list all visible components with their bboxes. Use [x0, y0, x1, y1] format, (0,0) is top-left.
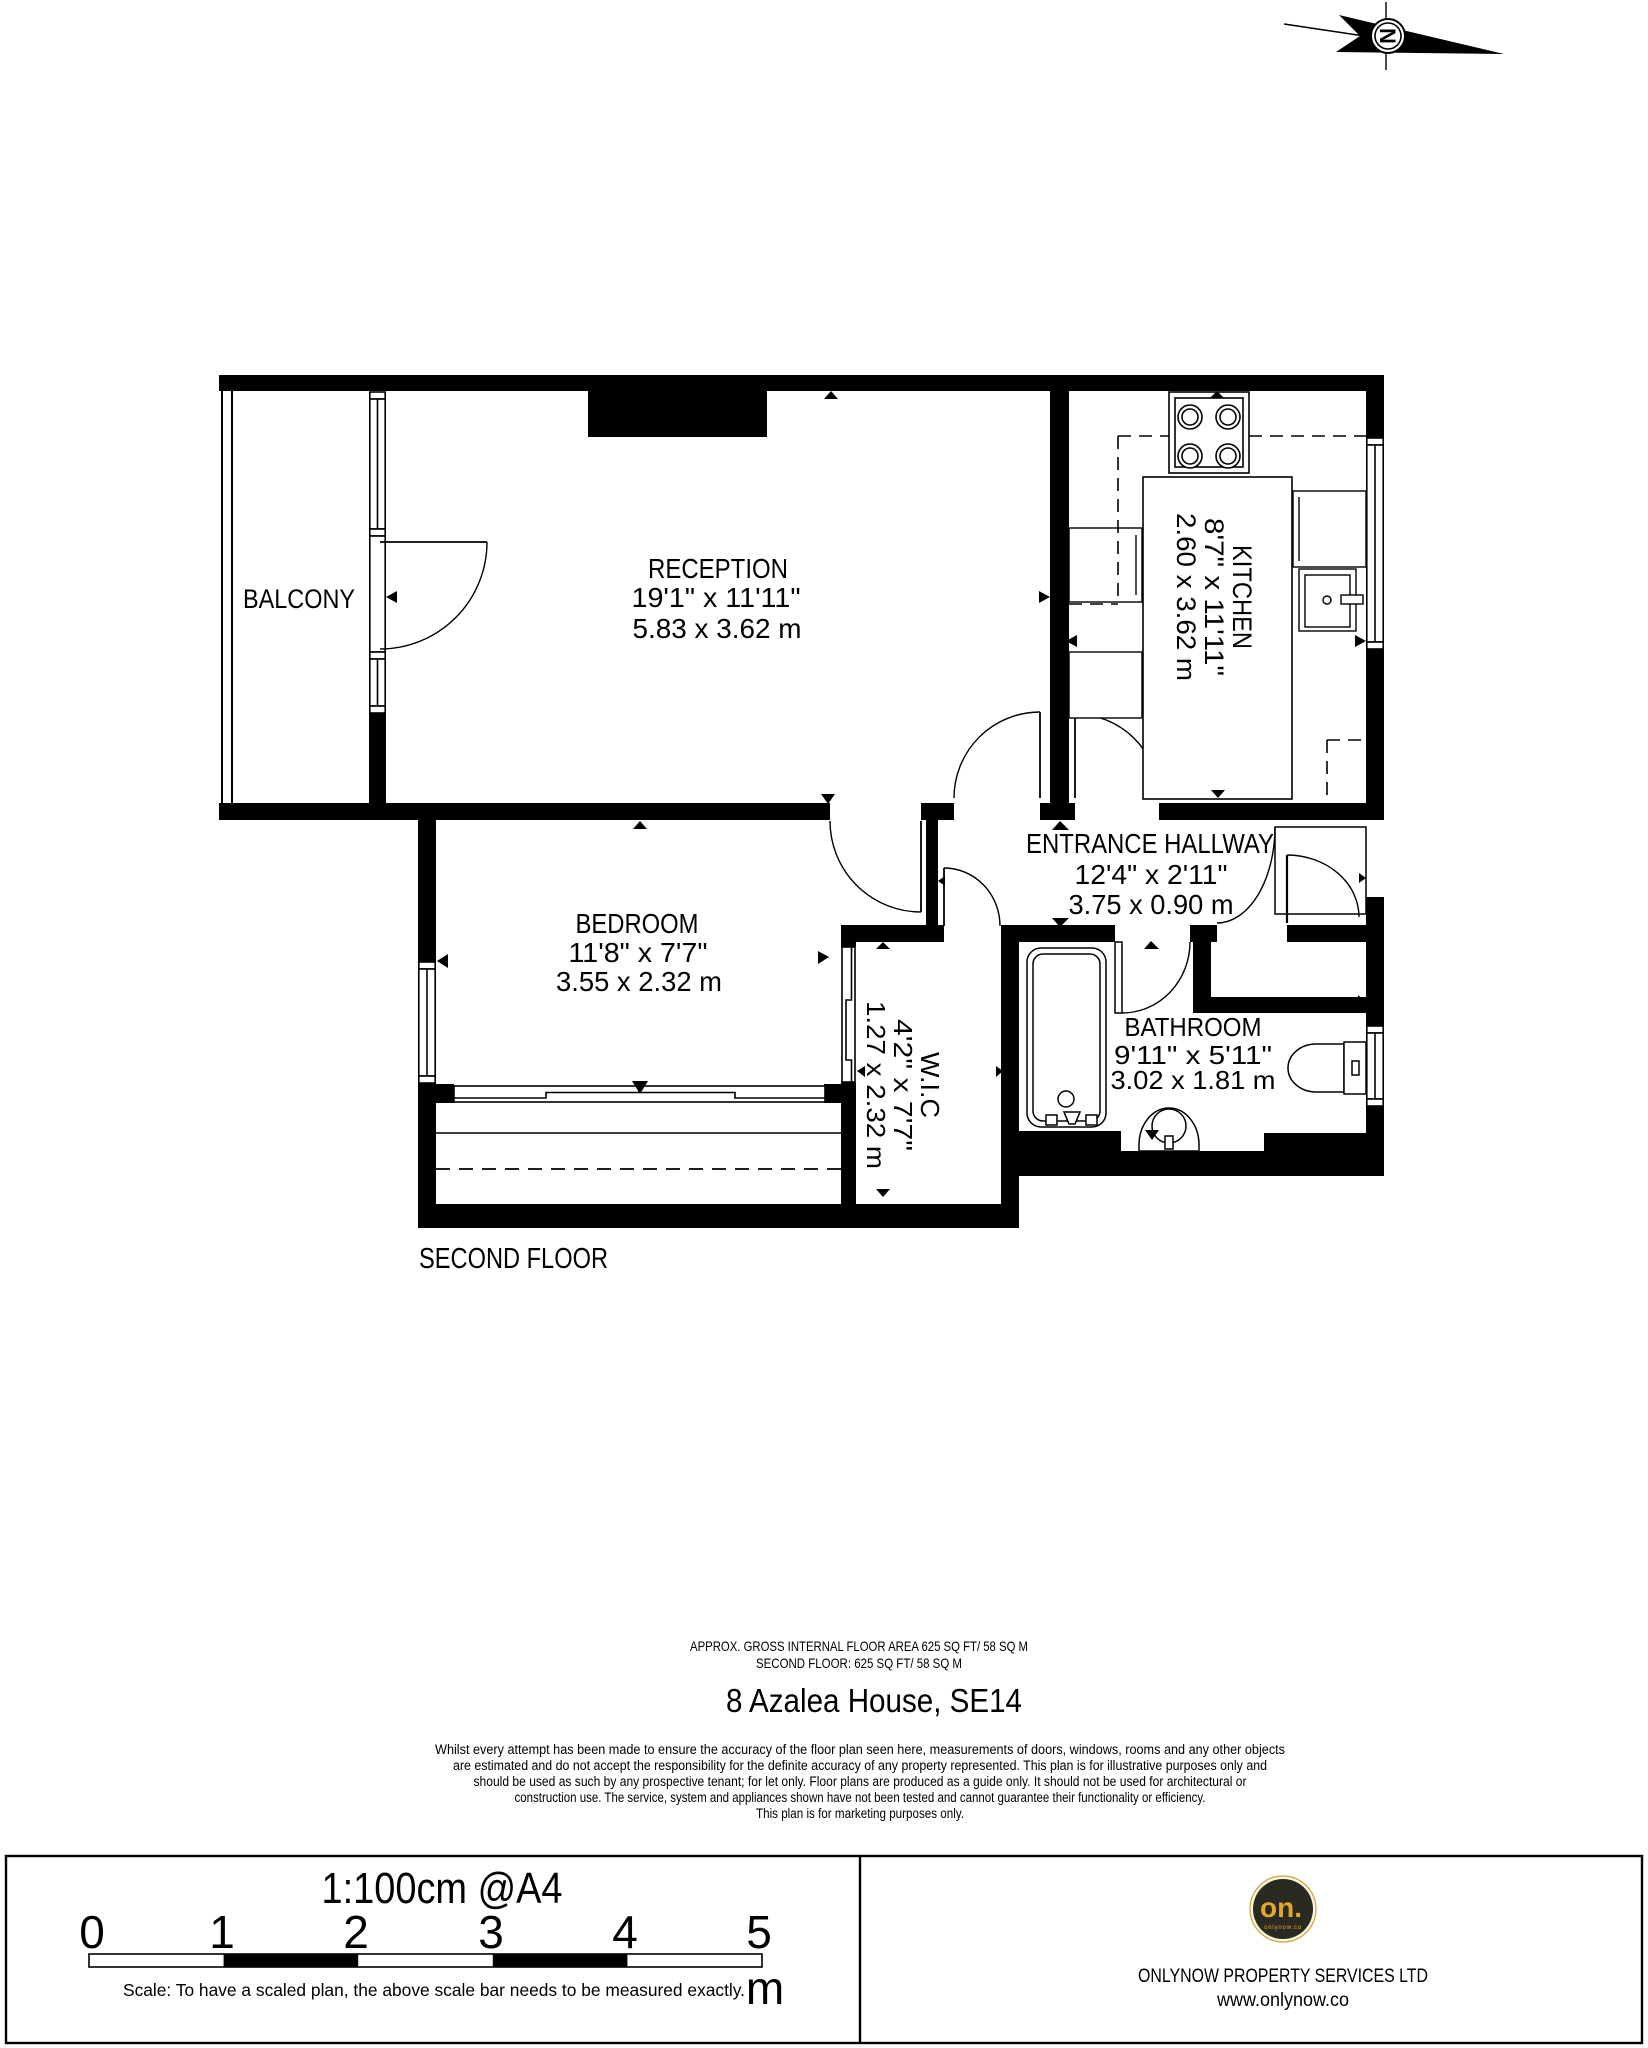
svg-text:are estimated and do not accep: are estimated and do not accept the resp… [453, 1758, 1267, 1773]
svg-text:BATHROOM: BATHROOM [1125, 1012, 1262, 1042]
svg-text:8'7" x 11'11": 8'7" x 11'11" [1199, 518, 1229, 676]
svg-text:www.onlynow.co: www.onlynow.co [1216, 1990, 1349, 2011]
svg-text:W.I.C: W.I.C [915, 1052, 945, 1118]
svg-text:BALCONY: BALCONY [243, 584, 355, 614]
svg-text:should be used as such by any: should be used as such by any prospectiv… [474, 1774, 1247, 1789]
svg-text:construction use. The service,: construction use. The service, system an… [515, 1790, 1206, 1805]
svg-text:4'2" x 7'7": 4'2" x 7'7" [888, 1019, 918, 1151]
svg-text:3.55 x 2.32 m: 3.55 x 2.32 m [556, 966, 722, 997]
svg-text:1.27 x 2.32 m: 1.27 x 2.32 m [861, 1001, 891, 1169]
svg-text:2: 2 [343, 1906, 369, 1958]
svg-text:KITCHEN: KITCHEN [1227, 545, 1257, 649]
svg-text:ENTRANCE HALLWAY: ENTRANCE HALLWAY [1026, 828, 1274, 859]
svg-text:m: m [746, 1962, 784, 2014]
svg-text:N: N [1375, 28, 1400, 44]
svg-text:APPROX. GROSS INTERNAL FLOOR A: APPROX. GROSS INTERNAL FLOOR AREA 625 SQ… [690, 1638, 1028, 1654]
svg-text:12'4" x 2'11": 12'4" x 2'11" [1075, 859, 1228, 890]
svg-text:ONLYNOW PROPERTY SERVICES LTD: ONLYNOW PROPERTY SERVICES LTD [1138, 1966, 1428, 1987]
svg-text:3: 3 [478, 1906, 504, 1958]
svg-text:2.60 x 3.62 m: 2.60 x 3.62 m [1171, 513, 1201, 681]
svg-text:SECOND FLOOR: 625 SQ FT/ 58 SQ: SECOND FLOOR: 625 SQ FT/ 58 SQ M [756, 1655, 962, 1671]
svg-text:3.75 x 0.90 m: 3.75 x 0.90 m [1069, 889, 1234, 920]
svg-text:on.: on. [1260, 1892, 1302, 1923]
svg-text:5.83 x 3.62 m: 5.83 x 3.62 m [633, 613, 802, 644]
svg-text:11'8" x 7'7": 11'8" x 7'7" [569, 937, 708, 968]
svg-text:0: 0 [79, 1906, 105, 1958]
svg-text:Whilst every attempt has been: Whilst every attempt has been made to en… [435, 1742, 1285, 1757]
svg-text:BEDROOM: BEDROOM [576, 908, 699, 939]
svg-text:3.02 x 1.81 m: 3.02 x 1.81 m [1111, 1065, 1276, 1095]
svg-text:19'1" x 11'11": 19'1" x 11'11" [632, 582, 801, 613]
svg-text:5: 5 [746, 1906, 772, 1958]
svg-text:This plan is for marketing pur: This plan is for marketing purposes only… [756, 1806, 964, 1821]
svg-text:RECEPTION: RECEPTION [648, 553, 788, 584]
svg-text:1: 1 [209, 1906, 235, 1958]
svg-text:onlynow.co: onlynow.co [1264, 1925, 1302, 1931]
svg-text:SECOND FLOOR: SECOND FLOOR [419, 1243, 608, 1275]
svg-text:4: 4 [612, 1906, 638, 1958]
svg-text:8 Azalea House, SE14: 8 Azalea House, SE14 [726, 1682, 1022, 1719]
svg-text:Scale: To have a scaled plan,: Scale: To have a scaled plan, the above … [123, 1980, 745, 2000]
